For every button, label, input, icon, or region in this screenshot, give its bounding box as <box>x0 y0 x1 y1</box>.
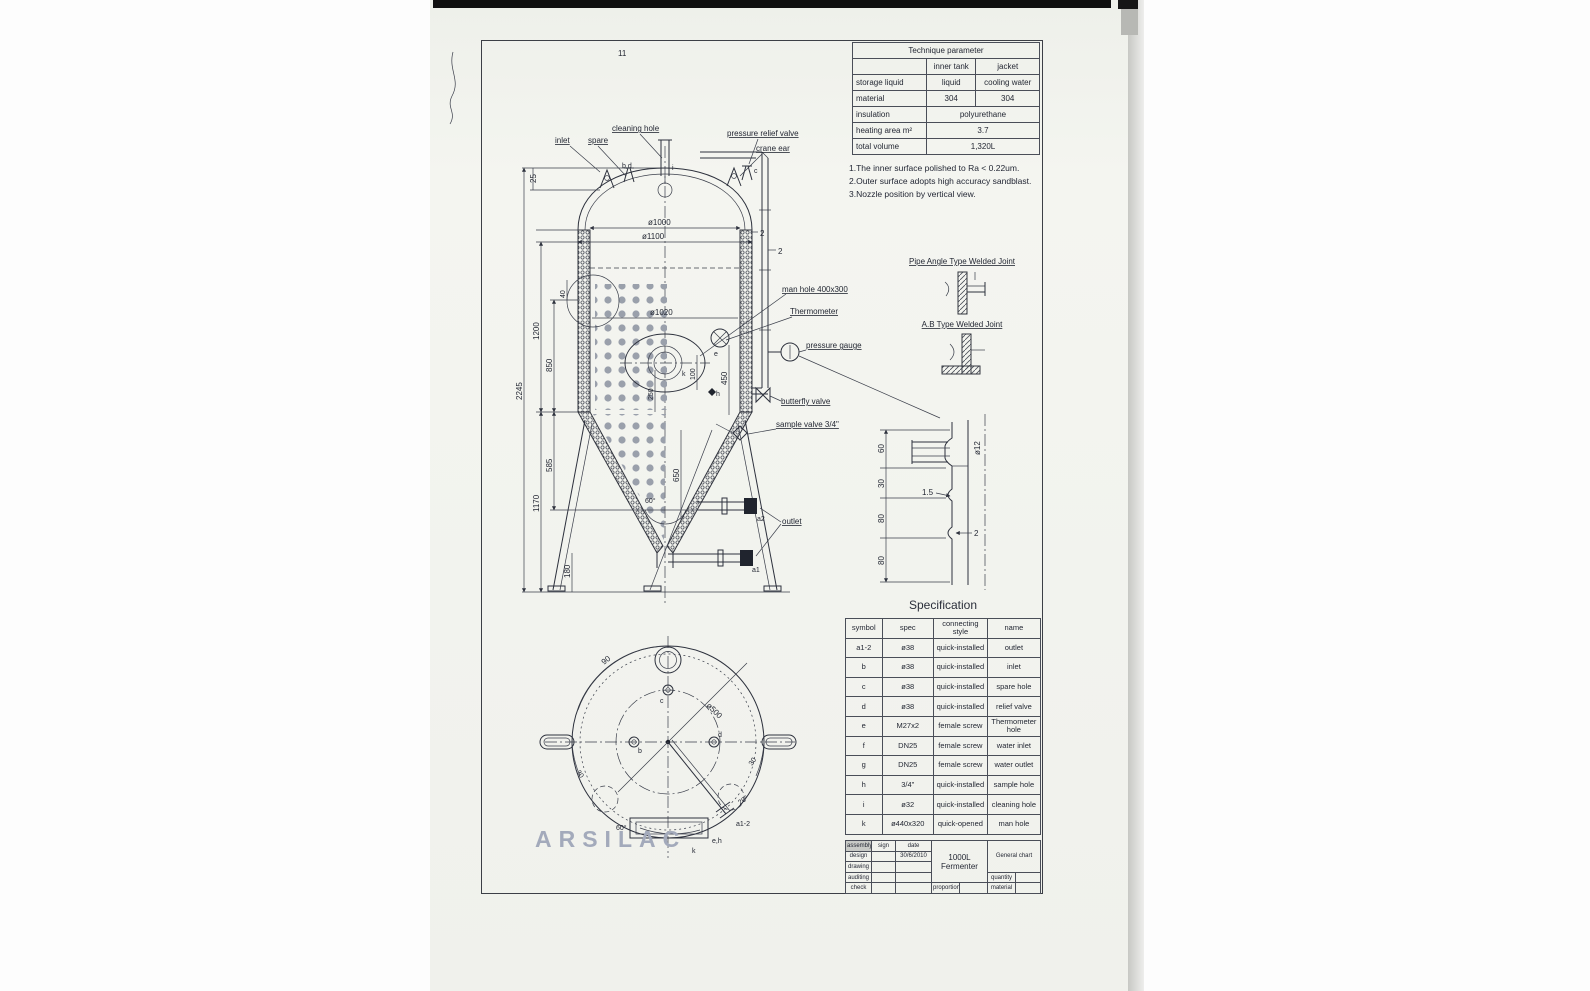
table-row: eM27x2female screwThermometer hole <box>846 716 1041 736</box>
product-volume: 1000L <box>933 853 986 862</box>
table-row: a1-2ø38quick-installedoutlet <box>846 638 1041 658</box>
spec-cell: i <box>846 795 883 815</box>
spec-cell: d <box>846 697 883 717</box>
nozzle-detail: 60 30 80 80 ø12 1.5 2 <box>877 414 985 590</box>
dim-40: 40 <box>560 290 567 298</box>
spec-cell: man hole <box>987 814 1040 834</box>
tech-col-header: inner tank <box>926 59 975 75</box>
spec-cell: sample hole <box>987 775 1040 795</box>
detail-dim-30: 30 <box>877 479 886 488</box>
dim-thickness-2b: 2 <box>778 247 783 256</box>
dim-180: 180 <box>563 564 572 578</box>
spec-cell: e <box>846 716 883 736</box>
spec-cell: k <box>846 814 883 834</box>
tb-label: check <box>846 883 872 894</box>
table-row: assembly sign date 1000L Fermenter Gener… <box>846 841 1041 852</box>
tech-cell: polyurethane <box>926 107 1039 123</box>
note-line: 3.Nozzle position by vertical view. <box>849 188 1049 201</box>
plan-mark-c: c <box>660 698 664 705</box>
tb-label: design <box>846 851 872 862</box>
plan-mark-k: k <box>692 848 696 855</box>
tech-cell: liquid <box>926 75 975 91</box>
spec-cell: ø38 <box>882 677 933 697</box>
spec-cell: quick-installed <box>934 775 988 795</box>
tb-cell <box>960 883 988 894</box>
plan-dim-phi500: ø500 <box>705 701 725 721</box>
spec-cell: spare hole <box>987 677 1040 697</box>
tb-quantity-label: quantity <box>988 872 1016 883</box>
tb-cell <box>1016 883 1041 894</box>
spec-cell: quick-installed <box>934 677 988 697</box>
ab-joint-title: A.B Type Welded Joint <box>922 320 1003 329</box>
detail-dim-80b: 80 <box>877 556 886 565</box>
detail-dim-phi12: ø12 <box>973 441 982 455</box>
tech-cell: storage liquid <box>853 75 927 91</box>
spec-cell: quick-installed <box>934 795 988 815</box>
tech-cell: 1,320L <box>926 139 1039 155</box>
dim-1200: 1200 <box>532 322 541 340</box>
spec-cell: g <box>846 756 883 776</box>
dim-60deg: 60° <box>645 497 656 505</box>
external-pipe <box>700 152 771 394</box>
spec-cell: h <box>846 775 883 795</box>
dim-850: 850 <box>545 358 554 372</box>
label-man-hole: man hole 400x300 <box>782 285 848 294</box>
label-inlet: inlet <box>555 136 570 145</box>
spec-cell: DN25 <box>882 736 933 756</box>
tb-label: auditing <box>846 872 872 883</box>
scanned-drawing-page: 11 <box>0 0 1590 991</box>
spec-cell: ø440x320 <box>882 814 933 834</box>
tech-table-title: Technique parameter <box>853 43 1040 59</box>
mark-e: e <box>714 351 718 358</box>
detail-dim-2: 2 <box>974 529 979 538</box>
spec-cell: quick-installed <box>934 658 988 678</box>
detail-dim-60: 60 <box>877 444 886 453</box>
spec-cell: outlet <box>987 638 1040 658</box>
spec-cell: ø38 <box>882 658 933 678</box>
tb-cell <box>896 862 932 873</box>
tank-elevation <box>548 140 799 604</box>
spec-cell: cleaning hole <box>987 795 1040 815</box>
table-row: storage liquid liquid cooling water <box>853 75 1040 91</box>
spec-cell: female screw <box>934 736 988 756</box>
spec-cell: water inlet <box>987 736 1040 756</box>
outlet-a2 <box>697 498 757 514</box>
butterfly-valve <box>756 388 770 402</box>
tech-cell <box>853 59 927 75</box>
spec-header: symbol <box>846 619 883 639</box>
mark-k: k <box>682 371 686 378</box>
spec-cell: DN25 <box>882 756 933 776</box>
pressure-gauge <box>768 343 799 361</box>
tech-cell: total volume <box>853 139 927 155</box>
spec-cell: ø38 <box>882 638 933 658</box>
table-row: material 304 304 <box>853 91 1040 107</box>
spec-cell: Thermometer hole <box>987 716 1040 736</box>
title-block: assembly sign date 1000L Fermenter Gener… <box>845 840 1041 894</box>
table-row: symbol spec connecting style name <box>846 619 1041 639</box>
tech-cell: 3.7 <box>926 123 1039 139</box>
dim-585: 585 <box>545 458 554 472</box>
tb-sign-header: sign <box>872 841 896 852</box>
note-line: 2.Outer surface adopts high accuracy san… <box>849 175 1049 188</box>
tb-date-header: date <box>896 841 932 852</box>
label-cleaning-hole: cleaning hole <box>612 124 660 133</box>
drawing-notes: 1.The inner surface polished to Ra < 0.2… <box>849 162 1049 201</box>
dim-phi1000: ø1000 <box>648 218 671 227</box>
dim-2245: 2245 <box>515 382 524 400</box>
table-row: check proportion material <box>846 883 1041 894</box>
tech-cell: cooling water <box>976 75 1040 91</box>
pencil-marks: 11 <box>450 49 627 124</box>
table-row: iø32quick-installedcleaning hole <box>846 795 1041 815</box>
spec-cell: ø32 <box>882 795 933 815</box>
label-spare: spare <box>588 136 609 145</box>
specification-title: Specification <box>845 598 1041 612</box>
bottom-plan-view: 90 ø500 30 30 20° 60° c b d e,h k a1-2 <box>540 636 796 858</box>
tb-cell <box>872 862 896 873</box>
dim-250: 250 <box>648 388 655 400</box>
tech-cell: insulation <box>853 107 927 123</box>
table-row: Technique parameter <box>853 43 1040 59</box>
label-sample-valve: sample valve 3/4" <box>776 420 839 429</box>
dim-phi1020: ø1020 <box>650 308 673 317</box>
technique-parameter-table: Technique parameter inner tank jacket st… <box>852 42 1040 155</box>
spec-cell: c <box>846 677 883 697</box>
label-crane-ear: crane ear <box>756 144 790 153</box>
dim-100: 100 <box>690 368 697 380</box>
table-row: cø38quick-installedspare hole <box>846 677 1041 697</box>
tech-cell: heating area m² <box>853 123 927 139</box>
label-butterfly-valve: butterfly valve <box>781 397 831 406</box>
dim-phi1100: ø1100 <box>642 232 665 241</box>
tb-label: drawing <box>846 862 872 873</box>
arsilac-watermark: ARSILAC <box>535 826 686 853</box>
table-row: gDN25female screwwater outlet <box>846 756 1041 776</box>
spec-header: connecting style <box>934 619 988 639</box>
dim-thickness-2a: 2 <box>760 229 765 238</box>
tb-cell <box>872 851 896 862</box>
mark-h: h <box>716 391 720 398</box>
table-row: bø38quick-installedinlet <box>846 658 1041 678</box>
label-pressure-relief-valve: pressure relief valve <box>727 129 799 138</box>
table-row: kø440x320quick-openedman hole <box>846 814 1041 834</box>
plan-mark-b: b <box>638 748 642 755</box>
spec-header: name <box>987 619 1040 639</box>
spec-cell: 3/4" <box>882 775 933 795</box>
plan-mark-d: d <box>718 732 722 739</box>
tb-cell <box>896 872 932 883</box>
dim-25: 25 <box>529 174 538 183</box>
outlet-a1 <box>668 550 753 566</box>
table-row: inner tank jacket <box>853 59 1040 75</box>
spec-cell: ø38 <box>882 697 933 717</box>
doc-type: General chart <box>988 841 1041 873</box>
pencil-text: 11 <box>618 49 627 58</box>
tech-cell: 304 <box>926 91 975 107</box>
spec-cell: water outlet <box>987 756 1040 776</box>
spec-cell: M27x2 <box>882 716 933 736</box>
note-line: 1.The inner surface polished to Ra < 0.2… <box>849 162 1049 175</box>
spec-cell: female screw <box>934 756 988 776</box>
specification-table: symbol spec connecting style name a1-2ø3… <box>845 618 1041 835</box>
table-row: insulation polyurethane <box>853 107 1040 123</box>
thermometer-nozzle <box>711 329 729 347</box>
spec-cell: b <box>846 658 883 678</box>
detail-dim-1point5: 1.5 <box>922 488 934 497</box>
label-outlet: outlet <box>782 517 802 526</box>
spec-cell: quick-installed <box>934 697 988 717</box>
pipe-angle-joint-title: Pipe Angle Type Welded Joint <box>909 257 1016 266</box>
product-type: Fermenter <box>933 862 986 871</box>
table-row: dø38quick-installedrelief valve <box>846 697 1041 717</box>
tech-cell: 304 <box>976 91 1040 107</box>
mark-c: c <box>754 168 758 175</box>
mark-a2: a2 <box>757 516 765 523</box>
plan-angle-30-right: 30 <box>748 757 758 767</box>
spec-cell: quick-installed <box>934 638 988 658</box>
spec-cell: f <box>846 736 883 756</box>
drawing-canvas: 11 <box>0 0 1590 991</box>
tech-cell: material <box>853 91 927 107</box>
spec-cell: female screw <box>934 716 988 736</box>
tb-proportion-label: proportion <box>932 883 960 894</box>
label-thermometer: Thermometer <box>790 307 838 316</box>
spec-cell: quick-opened <box>934 814 988 834</box>
label-pressure-gauge: pressure gauge <box>806 341 862 350</box>
table-row: heating area m² 3.7 <box>853 123 1040 139</box>
table-row: fDN25female screwwater inlet <box>846 736 1041 756</box>
spec-header: spec <box>882 619 933 639</box>
tech-col-header: jacket <box>976 59 1040 75</box>
spec-cell: relief valve <box>987 697 1040 717</box>
tb-cell <box>896 883 932 894</box>
table-row: h3/4"quick-installedsample hole <box>846 775 1041 795</box>
spec-cell: inlet <box>987 658 1040 678</box>
tb-cell <box>872 883 896 894</box>
dim-650: 650 <box>672 468 681 482</box>
tb-material-label: material <box>988 883 1016 894</box>
dim-1170: 1170 <box>532 494 541 512</box>
tb-cell <box>872 872 896 883</box>
tb-cell <box>1016 872 1041 883</box>
dim-450: 450 <box>720 371 729 385</box>
product-name: 1000L Fermenter <box>932 841 988 883</box>
tb-design-date: 30/6/2010 <box>896 851 932 862</box>
spec-cell: a1-2 <box>846 638 883 658</box>
table-row: total volume 1,320L <box>853 139 1040 155</box>
tb-label: assembly <box>846 841 872 852</box>
plan-mark-eh: e,h <box>712 838 722 845</box>
plan-mark-a1-2: a1-2 <box>736 821 750 828</box>
detail-dim-80a: 80 <box>877 514 886 523</box>
mark-bd: b,d <box>622 163 632 170</box>
mark-a1: a1 <box>752 567 760 574</box>
welded-joint-details: Pipe Angle Type Welded Joint A.B Type We… <box>909 257 1016 374</box>
